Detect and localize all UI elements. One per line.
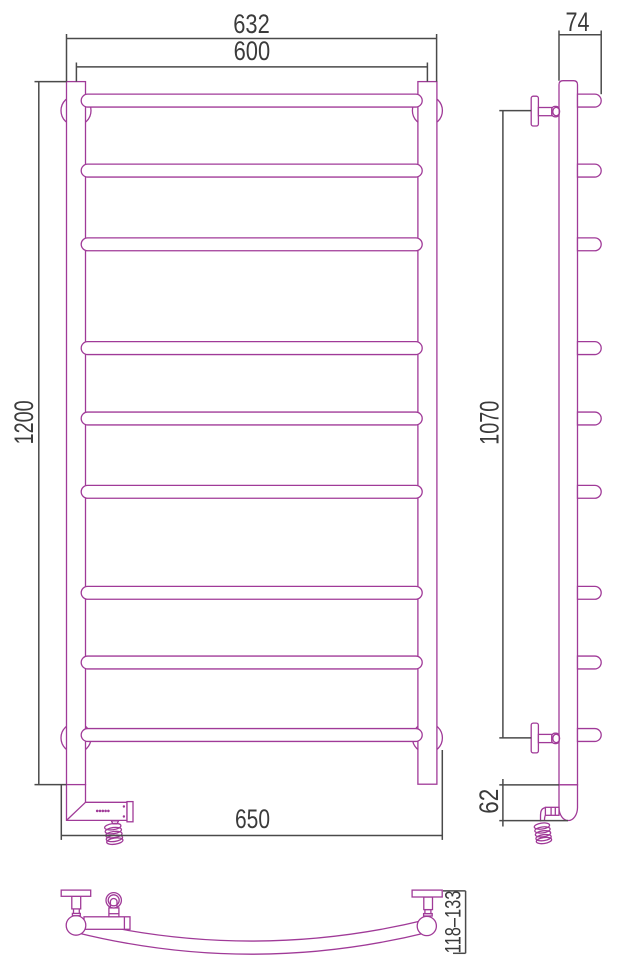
svg-text:1200: 1200 xyxy=(9,400,39,444)
svg-text:62: 62 xyxy=(474,789,504,814)
svg-text:118–133: 118–133 xyxy=(441,891,466,954)
svg-text:1070: 1070 xyxy=(474,401,504,445)
svg-text:632: 632 xyxy=(233,9,270,39)
svg-text:74: 74 xyxy=(566,7,590,37)
svg-text:650: 650 xyxy=(235,804,270,834)
svg-text:600: 600 xyxy=(234,36,271,66)
